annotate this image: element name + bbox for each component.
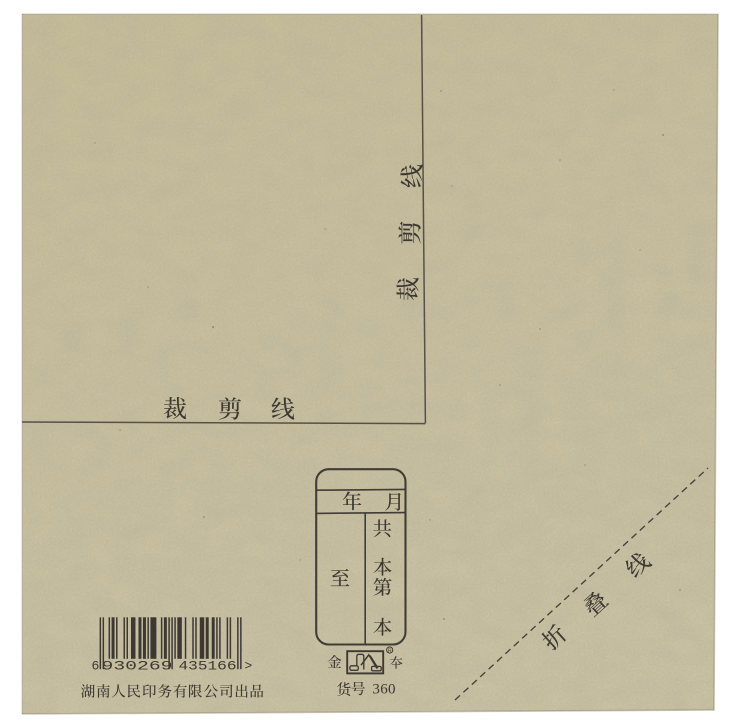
svg-text:6: 6 [92,659,100,674]
svg-text:930269: 930269 [102,659,173,674]
svg-text:>: > [245,659,253,674]
svg-text:R: R [388,648,392,654]
svg-text:360: 360 [372,681,395,697]
svg-text:435166: 435166 [179,659,237,674]
